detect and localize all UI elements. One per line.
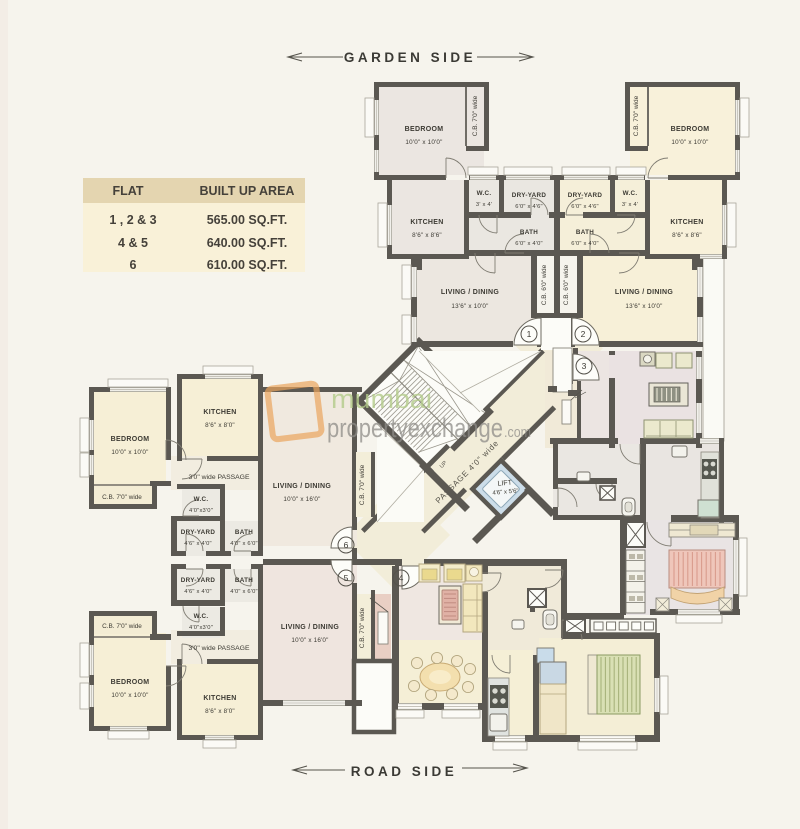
svg-text:FLAT: FLAT <box>112 184 143 198</box>
svg-text:3: 3 <box>582 361 587 371</box>
svg-text:C.B. 7'0" wide: C.B. 7'0" wide <box>472 95 479 136</box>
svg-text:KITCHEN: KITCHEN <box>410 219 443 226</box>
svg-text:C.B. 6'0" wide: C.B. 6'0" wide <box>541 264 548 305</box>
svg-text:BEDROOM: BEDROOM <box>405 126 444 133</box>
svg-text:4'0" x 6'0": 4'0" x 6'0" <box>230 589 258 595</box>
svg-text:C.B. 7'0" wide: C.B. 7'0" wide <box>633 95 640 136</box>
svg-text:BATH: BATH <box>235 529 253 536</box>
svg-text:KITCHEN: KITCHEN <box>203 695 236 702</box>
svg-text:ROAD SIDE: ROAD SIDE <box>351 764 458 779</box>
svg-text:BUILT UP AREA: BUILT UP AREA <box>200 184 295 198</box>
svg-text:LIVING / DINING: LIVING / DINING <box>281 624 339 631</box>
svg-text:4: 4 <box>399 573 404 583</box>
svg-text:8'6" x 8'6": 8'6" x 8'6" <box>672 232 702 239</box>
svg-text:3' x 4': 3' x 4' <box>476 202 492 208</box>
svg-text:4 & 5: 4 & 5 <box>118 236 148 250</box>
svg-text:4'6" x 4'0": 4'6" x 4'0" <box>184 541 212 547</box>
svg-text:KITCHEN: KITCHEN <box>670 219 703 226</box>
svg-text:DRY-YARD: DRY-YARD <box>512 192 547 199</box>
svg-text:1: 1 <box>527 329 532 339</box>
svg-text:BATH: BATH <box>235 577 253 584</box>
svg-text:3'0" wide PASSAGE: 3'0" wide PASSAGE <box>188 474 249 481</box>
svg-text:6'0" x 4'0": 6'0" x 4'0" <box>515 241 543 247</box>
svg-text:LIFT: LIFT <box>497 479 513 487</box>
svg-text:8'6" x 8'0": 8'6" x 8'0" <box>205 708 235 715</box>
svg-text:C.B. 7'0" wide: C.B. 7'0" wide <box>102 623 142 630</box>
svg-text:4'6" x 4'0": 4'6" x 4'0" <box>184 589 212 595</box>
svg-text:6'0" x 4'0": 6'0" x 4'0" <box>571 241 599 247</box>
svg-text:13'6" x 10'0": 13'6" x 10'0" <box>451 303 488 310</box>
svg-text:6'0" x 4'6": 6'0" x 4'6" <box>515 204 543 210</box>
svg-text:BEDROOM: BEDROOM <box>111 436 150 443</box>
svg-text:5: 5 <box>344 573 349 583</box>
svg-text:3'0" wide PASSAGE: 3'0" wide PASSAGE <box>188 645 249 652</box>
svg-text:8'6" x 8'0": 8'6" x 8'0" <box>205 422 235 429</box>
svg-text:10'0" x 10'0": 10'0" x 10'0" <box>405 139 442 146</box>
svg-text:4'0"x3'0": 4'0"x3'0" <box>189 625 213 631</box>
svg-text:4'0"x3'0": 4'0"x3'0" <box>189 508 213 514</box>
svg-text:10'0" x 10'0": 10'0" x 10'0" <box>671 139 708 146</box>
svg-text:BATH: BATH <box>520 229 538 236</box>
svg-text:mumbai: mumbai <box>331 384 432 414</box>
svg-text:DRY-YARD: DRY-YARD <box>181 529 216 536</box>
svg-text:C.B. 6'0" wide: C.B. 6'0" wide <box>563 264 570 305</box>
svg-text:C.B. 7'0" wide: C.B. 7'0" wide <box>359 464 366 505</box>
svg-text:C.B. 7'0" wide: C.B. 7'0" wide <box>102 494 142 501</box>
svg-text:10'0" x 16'0": 10'0" x 16'0" <box>291 637 328 644</box>
svg-text:BATH: BATH <box>576 229 594 236</box>
svg-text:LIVING / DINING: LIVING / DINING <box>441 289 499 296</box>
svg-text:10'0" x 10'0": 10'0" x 10'0" <box>111 692 148 699</box>
svg-text:GARDEN SIDE: GARDEN SIDE <box>344 50 476 65</box>
svg-text:4'0" x 6'0": 4'0" x 6'0" <box>230 541 258 547</box>
svg-text:10'0" x 10'0": 10'0" x 10'0" <box>111 449 148 456</box>
svg-text:8'6" x 8'6": 8'6" x 8'6" <box>412 232 442 239</box>
svg-text:W.C.: W.C. <box>623 190 638 197</box>
svg-text:LIVING / DINING: LIVING / DINING <box>273 483 331 490</box>
svg-text:2: 2 <box>581 329 586 339</box>
svg-text:LIVING / DINING: LIVING / DINING <box>615 289 673 296</box>
svg-text:6'0" x 4'6": 6'0" x 4'6" <box>571 204 599 210</box>
svg-text:W.C.: W.C. <box>194 613 209 620</box>
svg-text:DRY-YARD: DRY-YARD <box>181 577 216 584</box>
svg-text:KITCHEN: KITCHEN <box>203 409 236 416</box>
svg-text:6: 6 <box>130 258 137 272</box>
svg-text:W.C.: W.C. <box>194 496 209 503</box>
svg-text:13'6" x 10'0": 13'6" x 10'0" <box>625 303 662 310</box>
svg-text:1 , 2 & 3: 1 , 2 & 3 <box>109 213 156 227</box>
svg-text:610.00 SQ.FT.: 610.00 SQ.FT. <box>207 258 288 272</box>
svg-text:.com: .com <box>504 424 531 441</box>
svg-text:BEDROOM: BEDROOM <box>671 126 710 133</box>
svg-text:DRY-YARD: DRY-YARD <box>568 192 603 199</box>
svg-text:6: 6 <box>344 540 349 550</box>
svg-text:3' x 4': 3' x 4' <box>622 202 638 208</box>
svg-text:565.00 SQ.FT.: 565.00 SQ.FT. <box>207 213 288 227</box>
svg-text:W.C.: W.C. <box>477 190 492 197</box>
svg-text:640.00 SQ.FT.: 640.00 SQ.FT. <box>207 236 288 250</box>
svg-text:BEDROOM: BEDROOM <box>111 679 150 686</box>
svg-text:propertyexchange: propertyexchange <box>327 413 503 443</box>
svg-text:C.B. 7'0" wide: C.B. 7'0" wide <box>359 607 366 648</box>
svg-text:10'0" x 16'0": 10'0" x 16'0" <box>283 496 320 503</box>
